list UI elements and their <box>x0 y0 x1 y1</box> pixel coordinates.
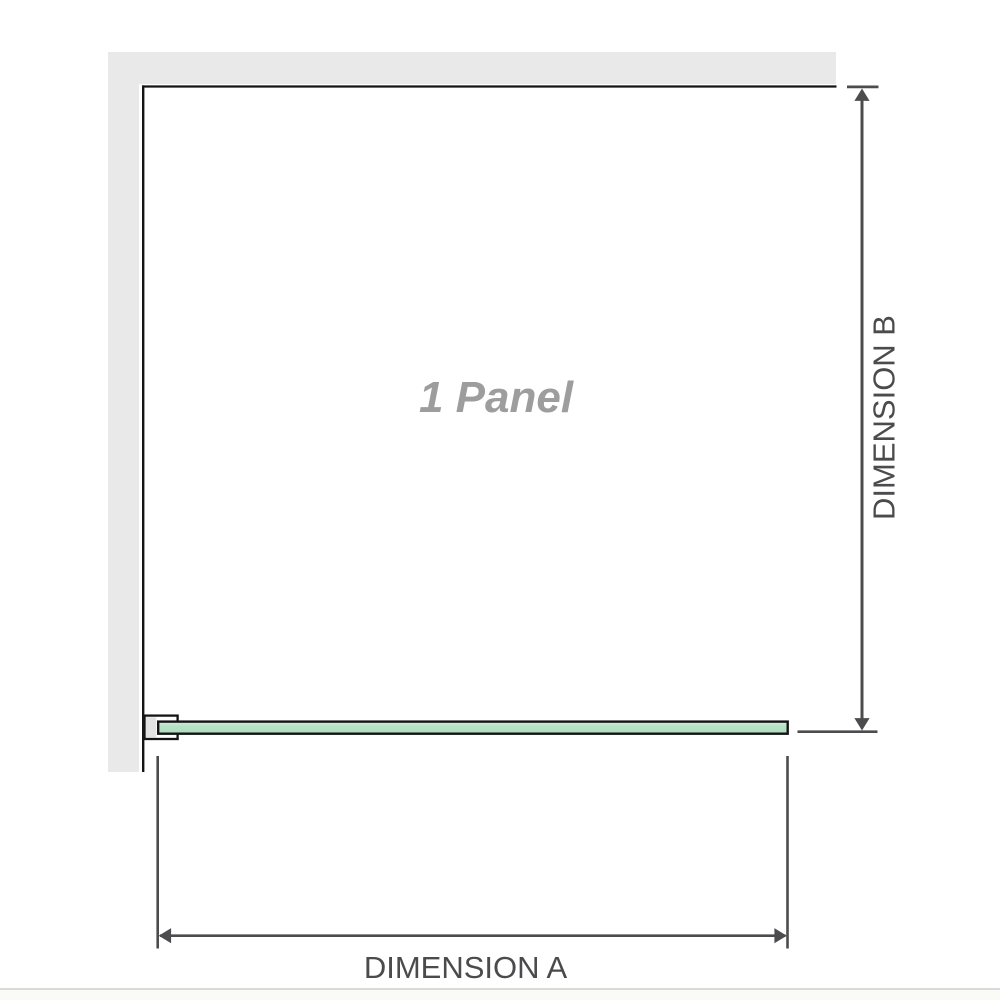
svg-text:DIMENSION B: DIMENSION B <box>867 315 902 520</box>
svg-text:1 Panel: 1 Panel <box>419 373 574 422</box>
svg-text:DIMENSION A: DIMENSION A <box>364 950 568 985</box>
